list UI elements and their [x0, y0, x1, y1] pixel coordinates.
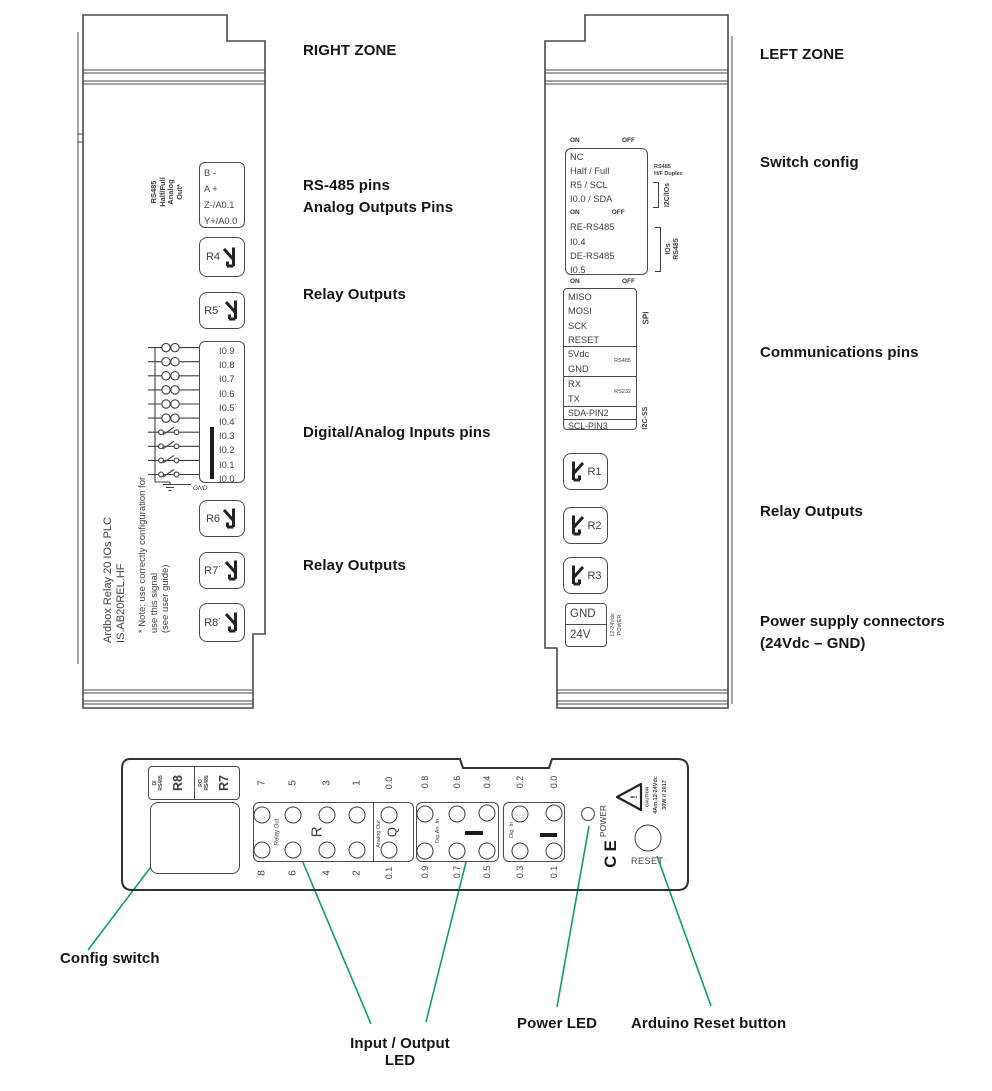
note-text-rotated: * Note: use correctly configuration for …	[137, 477, 172, 633]
input-pin: I0.6	[219, 387, 244, 401]
power-24v-cell: 24V	[566, 625, 606, 645]
switch-off-label-bottom: OFF	[622, 278, 635, 285]
analog-out-label-rotated: Analog Out	[376, 820, 382, 848]
i2c-ios-tag-rotated: I2C/IOs	[664, 183, 672, 207]
input-pin: I0.8	[219, 358, 244, 372]
relay-out-r-rotated: R	[308, 827, 325, 838]
io-led-line-1: Input / Output	[325, 1035, 475, 1052]
switch-on-label-bottom: ON	[570, 278, 580, 285]
rs485-analog-header-rotated: RS485 Half/Full Analog Out*	[150, 177, 184, 207]
rs485-analog-terminal-block: B - A + Z-/A0.1 Y+/A0.0	[199, 162, 245, 228]
input-pin: I0.5˙	[219, 401, 244, 415]
relay-r1: R1	[563, 453, 608, 490]
i2c-section: SDA-PIN2 SCL-PIN3	[564, 406, 636, 432]
relay-r8-label: R8˙	[204, 617, 222, 629]
relay-r6: R6	[199, 500, 245, 537]
relay-num: 3	[321, 780, 333, 786]
spi-tag-rotated: SPI	[641, 312, 650, 325]
relay-r6-label: R6	[206, 513, 220, 525]
comm-pin: SCK	[564, 319, 636, 333]
reset-label: RESET	[631, 856, 664, 866]
terminal-pin-y: Y+/A0.0	[204, 213, 244, 229]
relay-led-hole	[319, 807, 336, 824]
dig-group-dash	[540, 833, 557, 837]
digan-num: 0.7	[452, 866, 462, 879]
relay-led-hole	[319, 842, 336, 859]
dig-in-label-rotated: Dig. In	[509, 822, 515, 838]
analog-out-q-rotated: Q	[386, 827, 401, 837]
rs232-section: RX TX RS232	[564, 376, 636, 406]
relay-led-hole	[254, 842, 271, 859]
comm-pin: SDA-PIN2	[564, 407, 636, 419]
i2c-ios-bracket	[653, 182, 659, 208]
switch-row: NC	[566, 150, 647, 164]
reset-button	[635, 825, 662, 852]
spi-section: MISO MOSI SCK RESET	[564, 289, 636, 346]
ro-r7-big-rotated: R7	[217, 775, 231, 791]
analog-outputs-label: Analog Outputs Pins	[303, 199, 453, 216]
dig-num: 0.3	[515, 866, 525, 879]
relay-num: 4	[321, 870, 333, 876]
relay-out-label-rotated: Relay Out	[275, 819, 282, 846]
io-led-line-2: LED	[325, 1052, 475, 1069]
power-supply-label-2: (24Vdc – GND)	[760, 635, 866, 652]
rs485-tag: RS485	[614, 358, 631, 364]
ro-rs485-small-rotated: RO RS485	[198, 775, 210, 790]
switch-row: R5 / SCL	[566, 178, 647, 192]
relay-contact-icon	[223, 508, 238, 529]
digan-led-hole	[417, 806, 434, 823]
digan-num: 0.5	[482, 866, 492, 879]
digan-in-label-rotated: Dig.An. In	[435, 819, 441, 843]
switch-on-label-top: ON	[570, 137, 580, 144]
rs485-pins-label: RS-485 pins	[303, 177, 390, 194]
rs485-hf-duplex-tag: RS485 H/F Duplex	[654, 164, 683, 178]
relay-r8: R8˙	[199, 603, 245, 642]
ce-mark: CE	[601, 836, 621, 868]
terminal-pin-z: Z-/A0.1	[204, 197, 244, 213]
comm-pin: SCL-PIN3	[564, 419, 636, 432]
power-terminal-block: GND 24V	[565, 603, 607, 647]
relay-r3-label: R3	[587, 570, 601, 582]
io-led-callout-label: Input / Output LED	[325, 1035, 475, 1069]
dig-led-hole	[512, 843, 529, 860]
input-pin: I0.4˙	[219, 415, 244, 429]
rs485-ios-bracket	[655, 227, 661, 272]
relay-r4-label: R4	[206, 251, 220, 263]
digan-led-hole	[479, 805, 496, 822]
analog-num: 0.0	[384, 777, 394, 790]
rs485-ios-tag-rotated: IOs RS485	[665, 238, 681, 259]
input-pin: I0.1	[219, 458, 244, 472]
relay-r7: R7˙	[199, 552, 245, 589]
relay-r5: R5˙	[199, 292, 245, 329]
relay-contact-icon	[225, 560, 240, 581]
relay-contact-icon	[223, 247, 238, 268]
relay-r2-label: R2	[587, 520, 601, 532]
switch-row: I0.5	[566, 263, 647, 277]
analog-out-divider	[373, 803, 374, 861]
comm-pin: MISO	[564, 290, 636, 304]
relay-contact-icon	[225, 300, 240, 321]
di-r8-big-rotated: R8	[171, 775, 185, 791]
comm-pin: MOSI	[564, 304, 636, 318]
relay-led-hole	[349, 842, 366, 859]
digital-inputs-label: Digital/Analog Inputs pins	[303, 424, 491, 441]
gnd-label: GND	[193, 485, 207, 492]
config-switch-callout-label: Config switch	[60, 950, 160, 967]
dig-num: 0.2	[515, 776, 525, 789]
relay-r1-label: R1	[587, 466, 601, 478]
digan-num: 0.9	[420, 866, 430, 879]
config-switch-window	[150, 802, 240, 874]
switch-off-label-top: OFF	[622, 137, 635, 144]
left-zone-device: ON OFF NC Half / Full R5 / SCL I0.0 / SD…	[540, 14, 736, 712]
relay-outputs-label-3: Relay Outputs	[760, 503, 863, 520]
analog-led-hole	[381, 842, 398, 859]
power-gnd-cell: GND	[566, 604, 606, 625]
relay-contact-icon	[569, 515, 584, 536]
relay-contact-icon	[225, 612, 240, 633]
digan-num: 0.6	[452, 776, 462, 789]
switch-row: RE-RS485	[566, 220, 647, 234]
switch-config-label: Switch config	[760, 154, 859, 171]
relay-outputs-label-2: Relay Outputs	[303, 557, 406, 574]
digan-num: 0.4	[482, 776, 492, 789]
digan-led-hole	[449, 806, 466, 823]
i2c-ss-tag-rotated: I2C-SS	[642, 407, 650, 430]
caution-mark-rotated: !	[629, 796, 639, 799]
relay-r4: R4	[199, 237, 245, 277]
bottom-view-device: DI RS485 R8 RO RS485 R7 Relay Out R Anal…	[120, 757, 692, 892]
relay-r2: R2	[563, 507, 608, 544]
terminal-pin-b: B -	[204, 165, 244, 181]
relay-num: 1	[351, 780, 363, 786]
input-wiring-schematic	[143, 342, 199, 494]
input-pin: I0.0˙	[219, 472, 244, 486]
relay-num: 6	[287, 870, 299, 876]
pinout-diagram-page: RS485 Half/Full Analog Out* B - A + Z-/A…	[0, 0, 992, 1091]
power-led-callout-label: Power LED	[517, 1015, 597, 1032]
switch-onoff-row: ONOFF	[566, 206, 647, 220]
switch-row: Half / Full	[566, 164, 647, 178]
relay-r3: R3	[563, 557, 608, 594]
di-rs485-small-rotated: DI RS485	[152, 775, 164, 790]
analog-num: 0.1	[384, 867, 394, 880]
dig-led-hole	[512, 806, 529, 823]
config-switch-block: NC Half / Full R5 / SCL I0.0 / SDA ONOFF…	[565, 148, 648, 275]
relay-led-hole	[285, 807, 302, 824]
reset-callout-label: Arduino Reset button	[631, 1015, 786, 1032]
digan-led-hole	[417, 843, 434, 860]
dig-led-hole	[546, 843, 563, 860]
right-zone-title: RIGHT ZONE	[303, 42, 397, 59]
power-label-rotated: POWER	[599, 805, 609, 837]
input-pin: I0.2	[219, 443, 244, 457]
relay-contact-icon	[569, 461, 584, 482]
left-zone-title: LEFT ZONE	[760, 46, 844, 63]
relay-num: 8	[256, 870, 268, 876]
power-rating-tag-rotated: 12-24Vdc POWER	[610, 613, 624, 637]
switch-row: DE-RS485	[566, 249, 647, 263]
dig-led-hole	[546, 805, 563, 822]
input-group-bar	[210, 427, 214, 479]
relay-num: 5	[287, 780, 299, 786]
rs232-tag: RS232	[614, 389, 631, 395]
relay-led-hole	[254, 807, 271, 824]
product-name-rotated: Ardbox Relay 20 IOs PLC IS.AB20REL.HF	[102, 517, 128, 643]
relay-num: 7	[256, 780, 268, 786]
digan-num: 0.8	[420, 776, 430, 789]
switch-on-label-mid: ON	[570, 209, 580, 216]
dig-num: 0.0	[549, 776, 559, 789]
input-pin: I0.9	[219, 344, 244, 358]
rs485-power-section: 5Vdc GND RS485	[564, 346, 636, 376]
digan-led-hole	[449, 843, 466, 860]
switch-off-label-mid: OFF	[612, 209, 625, 216]
power-supply-label-1: Power supply connectors	[760, 613, 945, 630]
relay-outputs-label-1: Relay Outputs	[303, 286, 406, 303]
analog-led-hole	[381, 807, 398, 824]
comm-pin: RESET	[564, 333, 636, 347]
terminal-pin-a: A +	[204, 181, 244, 197]
caution-rating-rotated: 4Am,12-24Vdc	[653, 776, 659, 814]
relay-r7-label: R7˙	[204, 565, 222, 577]
power-led	[581, 807, 595, 821]
digan-group-dash	[465, 831, 483, 835]
digital-analog-input-terminal-block: I0.9 I0.8 I0.7 I0.6 I0.5˙ I0.4˙ I0.3 I0.…	[199, 341, 245, 483]
switch-row: I0.0 / SDA	[566, 192, 647, 206]
dig-num: 0.1	[549, 866, 559, 879]
relay-num: 2	[351, 870, 363, 876]
relay-contact-icon	[569, 565, 584, 586]
digan-led-hole	[479, 843, 496, 860]
input-pin: I0.7	[219, 372, 244, 386]
caution-year-rotated: 30W // 2017	[662, 780, 668, 810]
communications-label: Communications pins	[760, 344, 919, 361]
relay-led-hole	[285, 842, 302, 859]
caution-word-rotated: CAUTION	[644, 787, 649, 808]
communications-block: MISO MOSI SCK RESET 5Vdc GND RS485 RX TX…	[563, 288, 637, 430]
relay-led-hole	[349, 807, 366, 824]
right-zone-device: RS485 Half/Full Analog Out* B - A + Z-/A…	[75, 14, 270, 712]
comm-pin: GND	[564, 362, 636, 377]
input-pin: I0.3	[219, 429, 244, 443]
relay-r5-label: R5˙	[204, 305, 222, 317]
switch-row: I0.4	[566, 235, 647, 249]
